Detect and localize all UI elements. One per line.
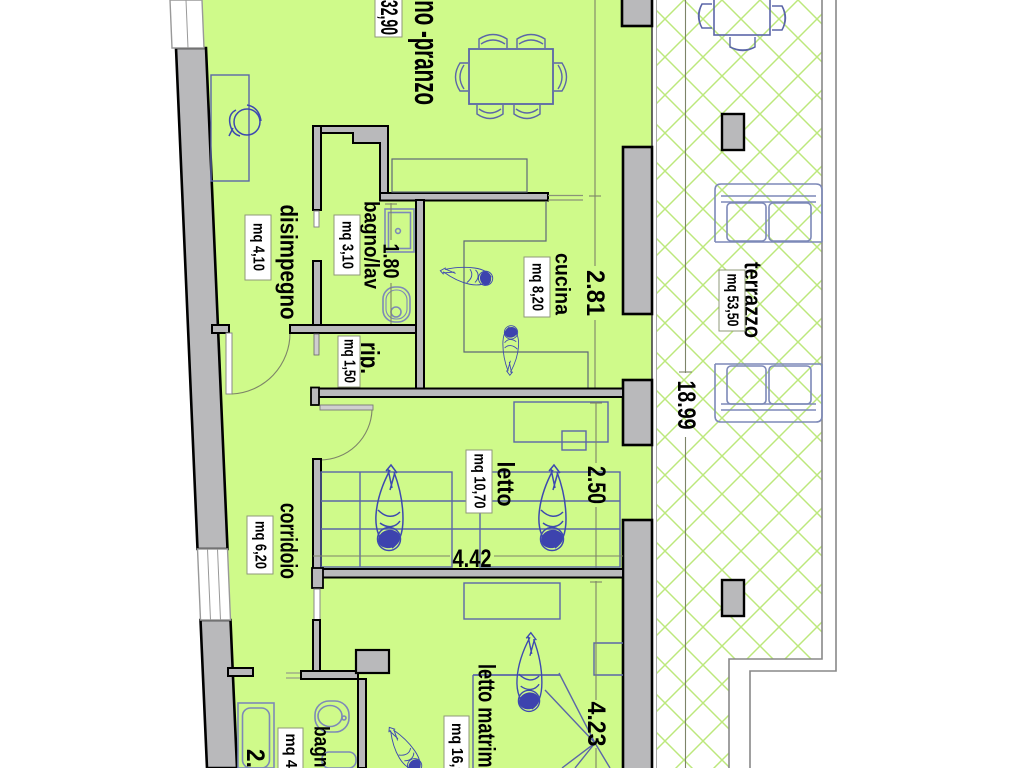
svg-text:mq 1,50: mq 1,50: [341, 339, 358, 383]
svg-text:mq 10,70: mq 10,70: [471, 454, 488, 509]
svg-text:cucina: cucina: [551, 253, 574, 315]
svg-text:2.50: 2.50: [582, 466, 610, 504]
svg-text:mq 6,20: mq 6,20: [252, 521, 269, 569]
svg-text:4.42: 4.42: [453, 545, 492, 573]
svg-text:mq 53,50: mq 53,50: [724, 274, 741, 327]
svg-text:2.81: 2.81: [581, 270, 609, 316]
svg-text:corridoio: corridoio: [275, 503, 302, 579]
svg-text:soggiorno -pranzo: soggiorno -pranzo: [407, 0, 445, 105]
svg-text:mq 4,10: mq 4,10: [250, 223, 267, 271]
svg-text:mq 8,20: mq 8,20: [529, 263, 546, 311]
svg-text:mq 3,10: mq 3,10: [339, 221, 356, 269]
svg-text:18.99: 18.99: [672, 381, 700, 430]
svg-text:letto matrimoniale: letto matrimoniale: [473, 664, 500, 768]
svg-text:disimpegno: disimpegno: [275, 205, 302, 320]
svg-text:4.23: 4.23: [582, 702, 610, 747]
svg-text:mq 16,90: mq 16,90: [448, 723, 465, 768]
svg-text:2.30: 2.30: [241, 749, 269, 768]
svg-text:mq 32,90: mq 32,90: [375, 0, 402, 35]
svg-text:bagno/lav: bagno/lav: [360, 201, 383, 289]
svg-text:bagno: bagno: [310, 726, 333, 768]
svg-text:mq 4,50: mq 4,50: [282, 734, 299, 768]
svg-text:letto: letto: [492, 462, 519, 507]
